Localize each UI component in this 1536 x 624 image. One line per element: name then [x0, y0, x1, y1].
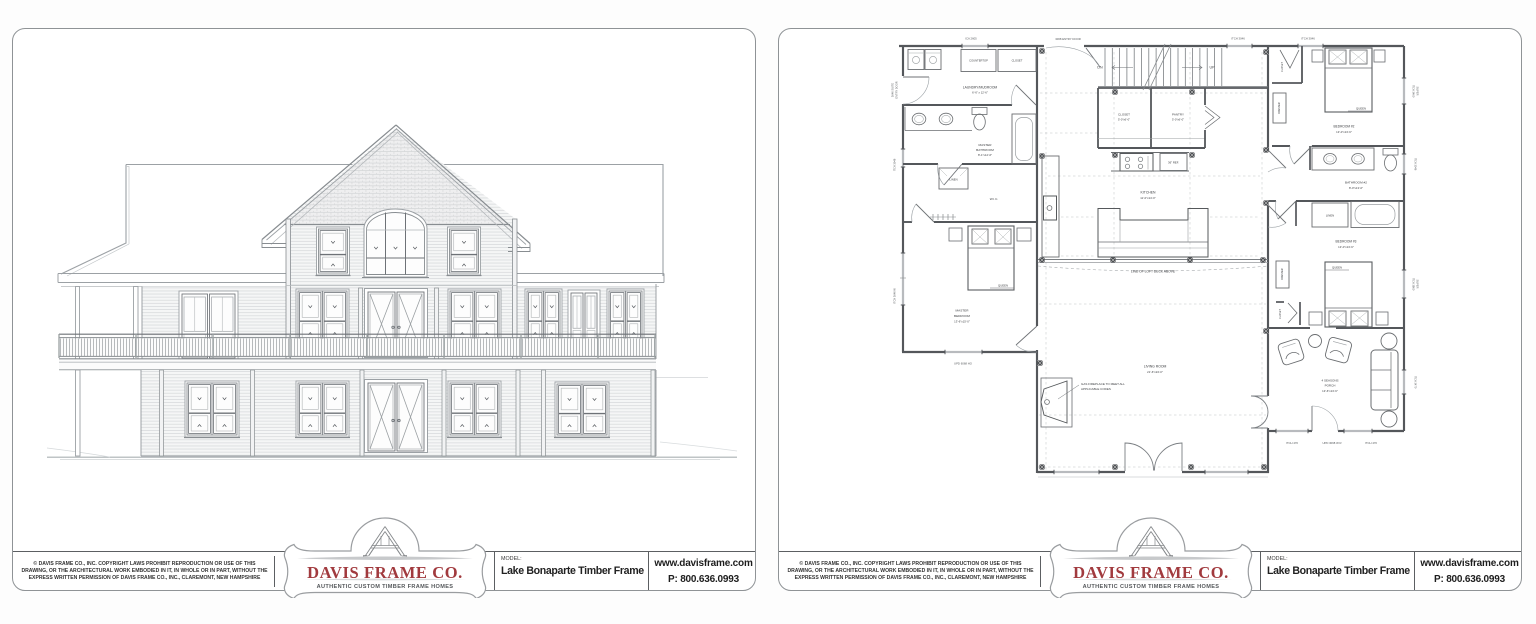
svg-text:UPD 6068 HO: UPD 6068 HO — [954, 361, 973, 365]
svg-text:LINEN: LINEN — [949, 177, 957, 181]
svg-text:DRESSER: DRESSER — [1279, 102, 1281, 113]
svg-text:BEDROOM: BEDROOM — [954, 314, 970, 318]
svg-text:ICA 2605: ICA 2605 — [965, 36, 977, 40]
svg-text:BEDROOM #2: BEDROOM #2 — [1333, 124, 1354, 128]
svg-text:13'-6"x13'-6": 13'-6"x13'-6" — [1322, 389, 1338, 393]
svg-text:PORCH: PORCH — [1324, 383, 1335, 387]
svg-text:ENTRY DOOR: ENTRY DOOR — [894, 81, 898, 98]
svg-text:3046 SUITE: 3046 SUITE — [890, 82, 894, 96]
svg-text:ITCH 3046: ITCH 3046 — [1231, 36, 1245, 40]
svg-text:LIVING ROOM: LIVING ROOM — [1143, 364, 1166, 368]
svg-text:LINEN: LINEN — [1325, 213, 1333, 217]
svg-text:MASTER: MASTER — [978, 143, 992, 147]
svg-text:CLOSET: CLOSET — [1118, 112, 1130, 116]
svg-text:ITCH 470: ITCH 470 — [1365, 441, 1377, 445]
svg-text:MASTER: MASTER — [955, 308, 969, 312]
svg-text:DAVIS FRAME CO.: DAVIS FRAME CO. — [307, 563, 463, 582]
svg-text:LAUNDRY/MUDROOM: LAUNDRY/MUDROOM — [962, 85, 997, 89]
svg-text:QUEEN: QUEEN — [1356, 106, 1366, 110]
svg-text:ITCH 470: ITCH 470 — [1286, 441, 1298, 445]
svg-text:CLOSET: CLOSET — [1011, 58, 1022, 62]
svg-text:BATHROOM #2: BATHROOM #2 — [1345, 180, 1367, 184]
svg-text:COUNTERTOP: COUNTERTOP — [969, 58, 988, 62]
svg-text:DN: DN — [1097, 65, 1103, 69]
svg-text:11'-0"x14'-0": 11'-0"x14'-0" — [1140, 195, 1155, 199]
svg-text:DRESSER: DRESSER — [1282, 268, 1284, 279]
svg-text:AUTHENTIC CUSTOM TIMBER FRAME: AUTHENTIC CUSTOM TIMBER FRAME HOMES — [316, 584, 453, 590]
svg-text:8'-0"x13'-0": 8'-0"x13'-0" — [1349, 185, 1363, 189]
svg-text:SUPER: SUPER — [1415, 279, 1419, 288]
svg-text:APPLICABLE CODES: APPLICABLE CODES — [1081, 387, 1111, 391]
svg-text:ITCH 3046: ITCH 3046 — [1413, 157, 1417, 170]
svg-text:ITCH 3046: ITCH 3046 — [892, 158, 896, 171]
svg-text:8'-1"x12'-6": 8'-1"x12'-6" — [978, 153, 992, 157]
svg-text:ITCH 3046 W: ITCH 3046 W — [892, 287, 896, 303]
svg-text:ITCH 3046: ITCH 3046 — [1301, 36, 1315, 40]
svg-text:SUPER: SUPER — [1415, 86, 1419, 95]
svg-text:5'-0"x6'-0": 5'-0"x6'-0" — [1118, 117, 1130, 121]
svg-text:QUEEN: QUEEN — [998, 283, 1008, 287]
svg-text:36" REF.: 36" REF. — [1168, 160, 1179, 164]
svg-text:ITCH 3460: ITCH 3460 — [1411, 84, 1415, 97]
svg-text:13'-0"x13'-6": 13'-0"x13'-6" — [1338, 244, 1354, 248]
svg-text:AUTHENTIC CUSTOM TIMBER FRAME: AUTHENTIC CUSTOM TIMBER FRAME HOMES — [1082, 584, 1219, 590]
svg-text:ITCH 3860: ITCH 3860 — [1411, 277, 1415, 290]
svg-text:GAS FIREPLACE TO MEET ALL: GAS FIREPLACE TO MEET ALL — [1081, 382, 1125, 386]
svg-text:PANTRY: PANTRY — [1172, 112, 1184, 116]
svg-text:3068 ENTRY DOOR: 3068 ENTRY DOOR — [1055, 37, 1081, 41]
svg-text:W.I.C.: W.I.C. — [989, 197, 998, 201]
svg-text:DAVIS FRAME CO.: DAVIS FRAME CO. — [1073, 563, 1229, 582]
svg-text:KITCHEN: KITCHEN — [1140, 190, 1155, 194]
svg-text:QUEEN: QUEEN — [1332, 265, 1342, 269]
svg-text:6'-6" x 12'-6": 6'-6" x 12'-6" — [972, 90, 988, 94]
svg-text:UP: UP — [1209, 65, 1215, 69]
svg-text:13'-6"x15'-0": 13'-6"x15'-0" — [954, 319, 970, 323]
svg-text:CLOSET: CLOSET — [1281, 61, 1284, 71]
svg-text:13'-0"x13'-6": 13'-0"x13'-6" — [1336, 129, 1352, 133]
svg-text:CLOSET: CLOSET — [1279, 308, 1282, 318]
svg-text:LINE OF LOFT DECK ABOVE: LINE OF LOFT DECK ABOVE — [1130, 269, 1175, 273]
svg-text:ITCH 3470: ITCH 3470 — [1413, 375, 1417, 388]
svg-text:5'-0"x6'-0": 5'-0"x6'-0" — [1172, 117, 1184, 121]
svg-text:BEDROOM #3: BEDROOM #3 — [1335, 239, 1356, 243]
svg-text:21'-6"x24'-0": 21'-6"x24'-0" — [1147, 370, 1163, 374]
svg-text:UPD 3068 W R: UPD 3068 W R — [1322, 441, 1341, 445]
svg-text:BATHROOM: BATHROOM — [976, 148, 994, 152]
svg-text:4 SEASONS: 4 SEASONS — [1321, 378, 1338, 382]
